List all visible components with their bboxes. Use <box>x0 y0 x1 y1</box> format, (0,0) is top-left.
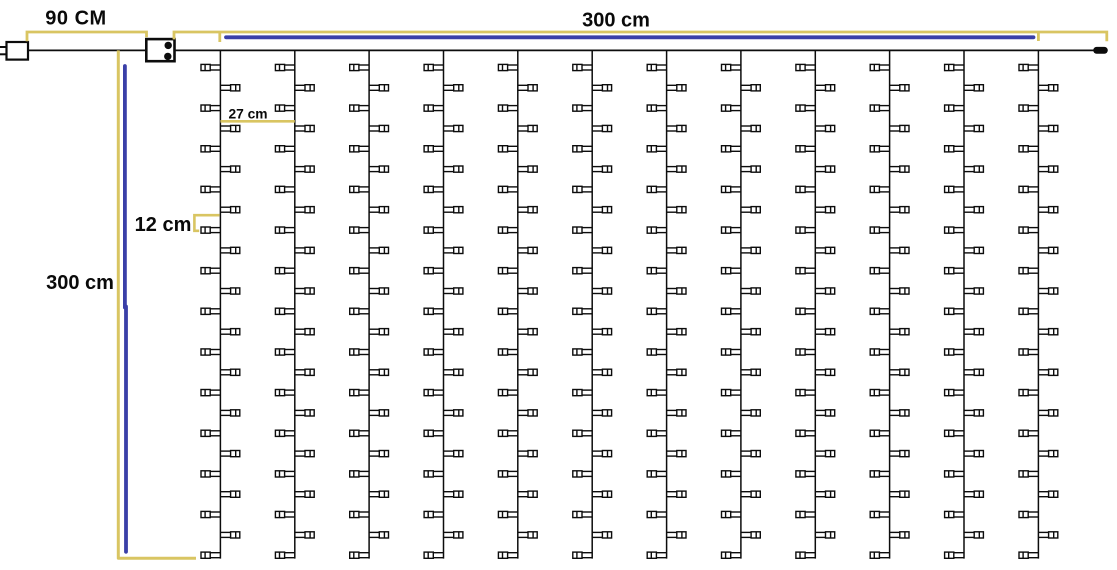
svg-text:12 cm: 12 cm <box>135 214 192 236</box>
svg-text:90 CM: 90 CM <box>45 8 106 30</box>
svg-text:27 cm: 27 cm <box>228 106 267 121</box>
svg-text:300 cm: 300 cm <box>582 9 650 31</box>
svg-text:300 cm: 300 cm <box>46 272 114 294</box>
